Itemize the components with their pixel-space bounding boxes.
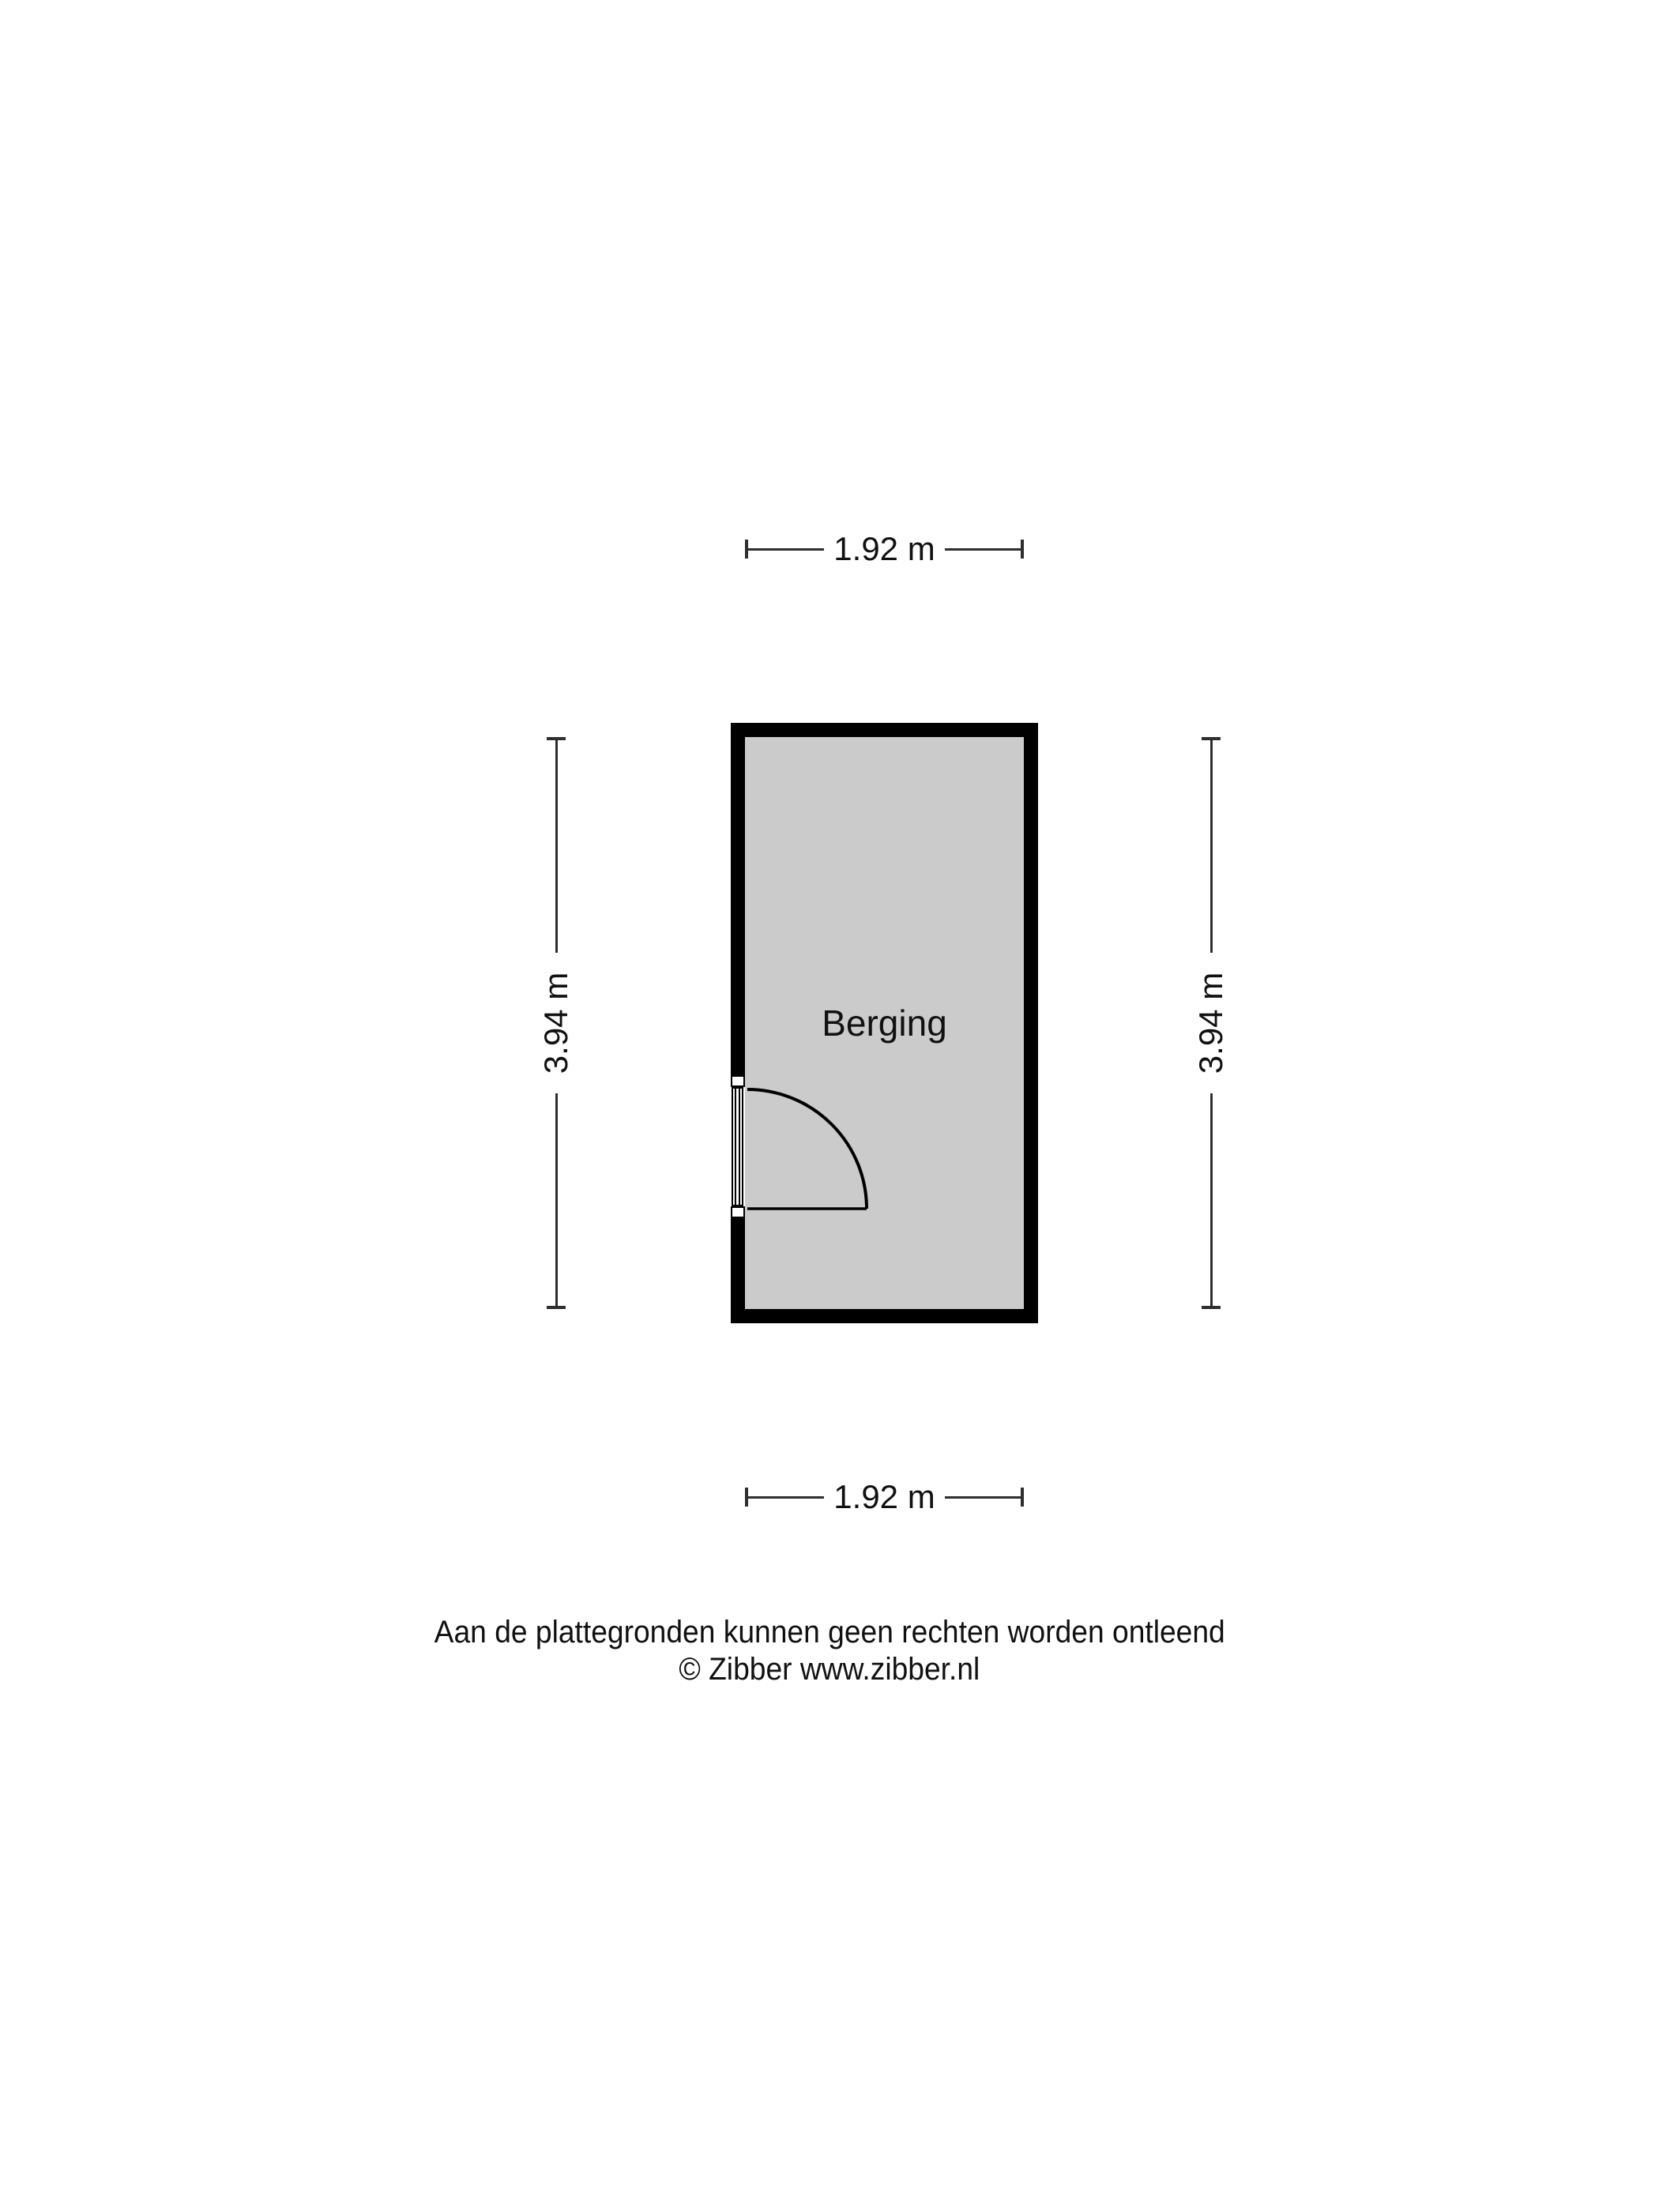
dimension-left-label: 3.94 m — [537, 972, 575, 1074]
dimension-left-label-slot: 3.94 m — [547, 953, 566, 1093]
dim-tick-right — [1021, 1488, 1024, 1507]
room-name-label: Berging — [822, 1005, 947, 1041]
copyright-text-inner: © Zibber www.zibber.nl — [679, 1651, 980, 1688]
door-leaf — [732, 1087, 743, 1206]
dim-line — [748, 1496, 824, 1499]
dimension-right-label-slot: 3.94 m — [1202, 953, 1221, 1093]
dimension-top-label: 1.92 m — [833, 530, 935, 568]
dim-line — [945, 548, 1021, 551]
dimension-right-label: 3.94 m — [1192, 972, 1230, 1074]
dim-line — [1210, 740, 1213, 953]
dimension-left: 3.94 m — [547, 737, 566, 1309]
door-swing-arc — [745, 1087, 868, 1210]
dimension-top: 1.92 m — [745, 530, 1024, 568]
dim-line — [945, 1496, 1021, 1499]
dimension-bottom: 1.92 m — [745, 1478, 1024, 1516]
door-jamb-top — [731, 1075, 745, 1087]
dim-line — [555, 740, 558, 953]
dim-tick-right — [1021, 540, 1024, 559]
dim-tick-bottom — [1202, 1306, 1221, 1309]
dim-tick-bottom — [547, 1306, 566, 1309]
dim-line — [1210, 1093, 1213, 1306]
disclaimer-text-inner: Aan de plattegronden kunnen geen rechten… — [434, 1614, 1224, 1651]
disclaimer-text: Aan de plattegronden kunnen geen rechten… — [0, 1614, 1659, 1651]
dimension-bottom-label: 1.92 m — [833, 1478, 935, 1516]
footer: Aan de plattegronden kunnen geen rechten… — [0, 1614, 1659, 1688]
dim-line — [555, 1093, 558, 1306]
room-berging: Berging — [731, 723, 1038, 1323]
copyright-text: © Zibber www.zibber.nl — [0, 1651, 1659, 1688]
door-jamb-bottom — [731, 1206, 745, 1218]
door-leaf-panel-line — [735, 1089, 740, 1205]
dimension-right: 3.94 m — [1202, 737, 1221, 1309]
dim-line — [748, 548, 824, 551]
floorplan-canvas: 1.92 m 3.94 m 3.94 m Berging — [0, 0, 1659, 2212]
